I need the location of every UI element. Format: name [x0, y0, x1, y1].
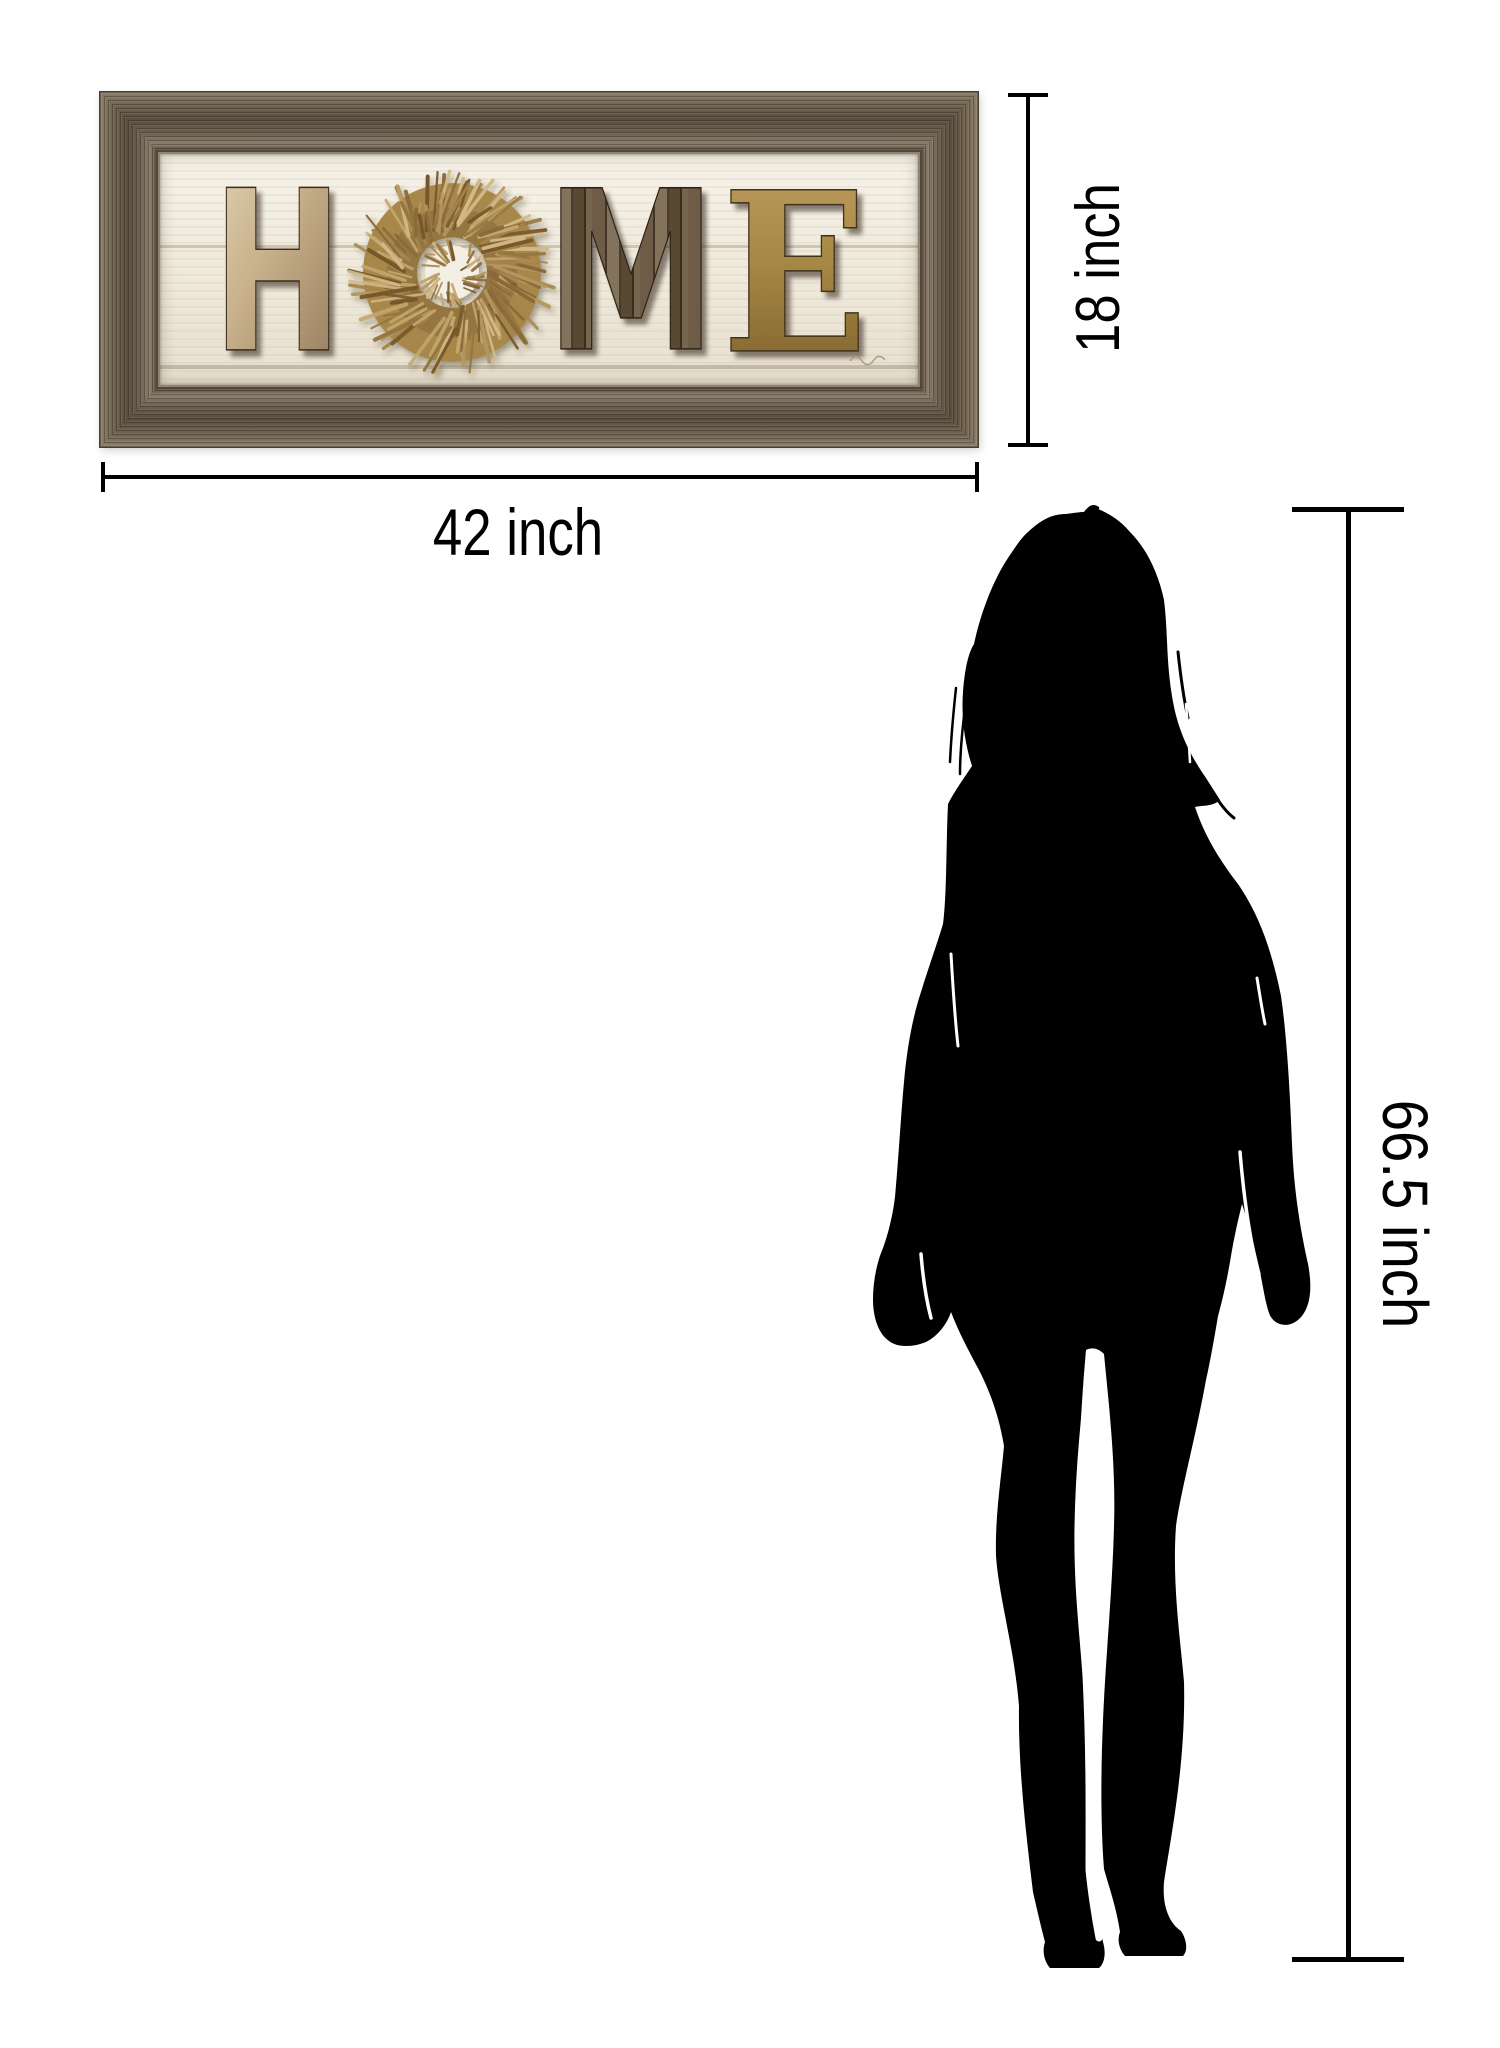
frame-moulding-top [100, 92, 978, 154]
width-dimension-line [103, 475, 977, 479]
frame-moulding-bottom [100, 385, 978, 447]
width-dimension-label: 42 inch [433, 499, 603, 565]
letter-m: M [545, 154, 717, 385]
height-dimension-label: 18 inch [1068, 183, 1130, 353]
width-dimension-tick-right [975, 462, 979, 492]
frame-moulding-right [918, 92, 978, 447]
size-comparison-image: H M E 42 inch 18 inch 66.5 inch [0, 0, 1500, 2048]
person-height-label: 66.5 inch [1373, 1100, 1437, 1329]
person-height-line [1346, 507, 1351, 1962]
width-dimension-tick-left [101, 462, 105, 492]
wheat-wreath-letter-o [349, 171, 554, 372]
feet-gap [1105, 1928, 1118, 1968]
letter-h: H [212, 154, 343, 385]
height-dimension-line [1026, 93, 1030, 447]
height-dimension-cap-bottom [1008, 443, 1048, 447]
letter-e: E [722, 154, 868, 385]
frame-moulding-left [100, 92, 160, 447]
woman-silhouette [868, 504, 1312, 1974]
home-sign-art: H M E [160, 154, 918, 385]
picture-frame: H M E [100, 92, 978, 447]
height-dimension-cap-top [1008, 93, 1048, 97]
home-word-graphic: H M E [160, 154, 918, 385]
